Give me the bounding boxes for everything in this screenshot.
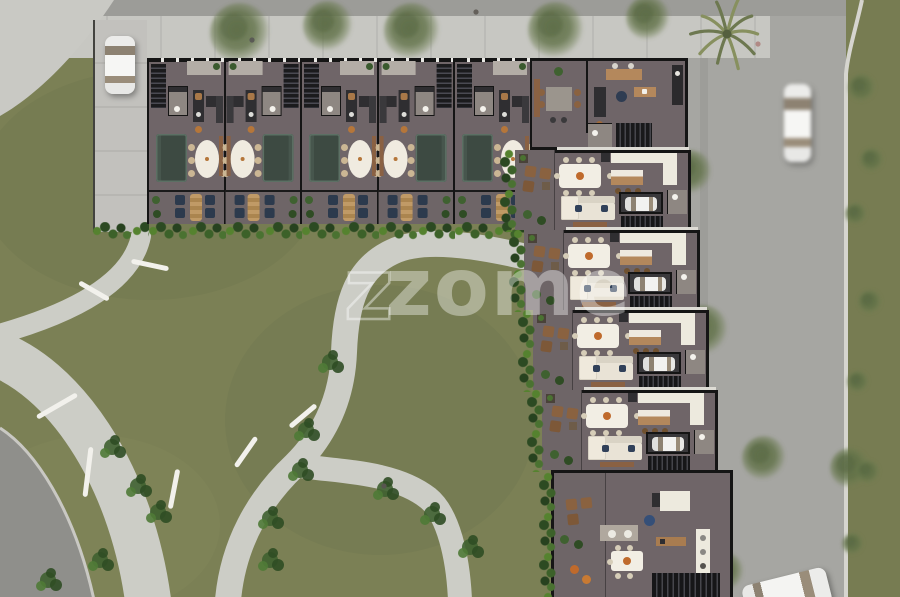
wood-sideboard <box>534 79 540 117</box>
bathroom <box>685 350 705 374</box>
terrace-plants <box>560 535 569 544</box>
garaged-car <box>625 197 657 211</box>
building-block <box>0 0 900 597</box>
staircase <box>457 64 472 108</box>
terrace-side-table <box>560 342 568 350</box>
kitchen-stool <box>247 126 254 133</box>
unit-furniture <box>302 58 377 224</box>
staircase <box>151 64 166 108</box>
wood-console <box>219 136 223 176</box>
bathroom <box>261 86 281 116</box>
sun-lounger <box>247 194 259 221</box>
porch-planter <box>382 63 389 70</box>
sofa-green <box>156 134 187 182</box>
sun-lounger <box>400 194 412 221</box>
side-hedge <box>527 388 545 472</box>
kitchen-counter <box>672 233 686 265</box>
terrace <box>149 190 224 224</box>
front-hedge <box>377 222 456 242</box>
bathroom <box>321 86 341 116</box>
wood-console <box>582 302 616 307</box>
townhouse-unit-right-3 <box>533 310 709 390</box>
bathroom <box>676 270 696 294</box>
kitchen-island <box>660 491 690 511</box>
bathroom <box>414 86 434 116</box>
garaged-car <box>652 437 684 451</box>
dining-chairs <box>615 545 621 551</box>
dining-chairs <box>590 397 596 403</box>
unit-furniture <box>149 58 224 224</box>
front-hedge <box>224 222 303 242</box>
dining-table-oval <box>230 140 254 178</box>
terrace-plants <box>523 210 532 219</box>
terrace-planter <box>519 154 528 163</box>
staircase <box>283 64 298 108</box>
desk-chairs <box>612 63 618 69</box>
garage <box>646 432 690 454</box>
dining-chairs <box>341 144 348 151</box>
terrace-plants <box>289 196 297 204</box>
kitchen-island <box>499 90 510 122</box>
kitchen-counter <box>216 96 223 123</box>
kitchen-counter <box>380 96 387 123</box>
bathroom <box>667 190 687 214</box>
terrace-chairs-brown <box>533 245 545 257</box>
dining-chairs <box>254 144 261 151</box>
terrace-poufs-orange <box>570 565 579 574</box>
terrace-chairs-brown <box>524 165 536 177</box>
kitchen-counter <box>672 65 683 105</box>
staircase <box>436 64 451 108</box>
desk-chairs <box>608 530 616 538</box>
table-centerpiece <box>623 557 631 565</box>
terrace-side-table <box>551 262 559 270</box>
wood-console <box>656 537 686 546</box>
bathroom <box>588 123 612 148</box>
stove <box>652 493 660 507</box>
townhouse-unit-top-1 <box>147 58 224 224</box>
terrace-armchairs <box>481 195 491 205</box>
table-centerpiece <box>603 412 611 420</box>
terrace-planter <box>537 314 546 323</box>
table-centerpiece <box>594 332 602 340</box>
wood-console <box>379 136 383 176</box>
kitchen-counter <box>696 529 710 573</box>
terrace-armchairs <box>417 195 427 205</box>
sofa-green <box>462 134 493 182</box>
sofa-cushions <box>575 205 582 212</box>
dining-chairs-dark <box>550 117 556 123</box>
kitchen-stool <box>348 126 355 133</box>
staircase <box>616 123 652 148</box>
wood-console <box>226 136 230 176</box>
kitchen-counter <box>690 393 704 425</box>
side-hedge <box>518 308 536 392</box>
site-plan-render: zzome <box>0 0 900 597</box>
dining-chairs <box>407 144 414 151</box>
bathroom <box>168 86 188 116</box>
garaged-car <box>634 277 666 291</box>
terrace-chairs-brown <box>542 325 554 337</box>
townhouse-unit-top-2 <box>224 58 301 224</box>
terrace-chairs-brown <box>565 498 577 510</box>
terrace-plants <box>550 450 559 459</box>
driveway-hedge <box>91 222 149 242</box>
staircase <box>304 64 319 108</box>
kitchen-counter <box>227 96 234 123</box>
kitchen-island <box>398 90 409 122</box>
front-hedge <box>300 222 379 242</box>
dining-chairs-brown <box>538 89 545 96</box>
terrace-side-table <box>542 182 550 190</box>
dining-table-square <box>546 87 572 111</box>
stove <box>628 393 637 402</box>
dining-table-oval <box>348 140 372 178</box>
townhouse-unit-right-4 <box>542 390 718 470</box>
kitchen-counter <box>522 96 529 123</box>
townhouse-unit-bottom <box>551 470 733 597</box>
wood-console <box>600 462 634 467</box>
garage <box>628 272 672 294</box>
terrace-armchairs <box>264 195 274 205</box>
kitchen-island <box>245 90 256 122</box>
kitchen-island <box>611 170 643 185</box>
dining-chairs <box>581 317 587 323</box>
side-hedge <box>500 148 518 232</box>
porch-planter <box>229 63 236 70</box>
townhouse-unit-right-2 <box>524 230 700 310</box>
round-table-blue <box>616 91 627 102</box>
sofa-cushions <box>602 445 609 452</box>
stove <box>619 313 628 322</box>
townhouse-unit-right-1 <box>515 150 691 230</box>
kitchen-island <box>594 87 606 117</box>
corner-unit <box>530 58 688 150</box>
kitchen-island <box>193 90 204 122</box>
kitchen-counter <box>663 153 677 185</box>
terrace <box>226 190 301 224</box>
kitchen-island <box>620 250 652 265</box>
work-desk <box>600 525 638 541</box>
dining-table-oval <box>195 140 219 178</box>
terrace-planter <box>528 234 537 243</box>
kitchen-counter <box>681 313 695 345</box>
staircase <box>652 573 720 597</box>
townhouse-unit-top-3 <box>300 58 377 224</box>
sofa-green <box>262 134 293 182</box>
dining-chairs <box>572 237 578 243</box>
bathroom <box>694 430 714 454</box>
side-hedge <box>539 471 557 597</box>
terrace-armchairs <box>175 195 185 205</box>
kitchen-stool <box>195 126 202 133</box>
terrace-side-table <box>569 422 577 430</box>
bathroom <box>474 86 494 116</box>
porch-planter <box>213 63 220 70</box>
kitchen-island <box>638 410 670 425</box>
garage <box>619 192 663 214</box>
sun-lounger <box>190 194 202 221</box>
driveway <box>93 20 147 232</box>
garaged-car <box>643 357 675 371</box>
sofa-green <box>309 134 340 182</box>
stove <box>610 233 619 242</box>
table-centerpiece <box>585 252 593 260</box>
front-hedge <box>147 222 226 242</box>
terrace-plants <box>152 196 160 204</box>
table-centerpiece <box>576 172 584 180</box>
unit-furniture <box>379 58 454 224</box>
terrace-plants <box>532 290 541 299</box>
wood-console <box>372 136 376 176</box>
garage <box>637 352 681 374</box>
work-desk <box>606 69 642 80</box>
side-hedge <box>509 228 527 312</box>
dining-table-oval <box>383 140 407 178</box>
terrace-armchairs <box>328 195 338 205</box>
terrace-chairs-brown <box>551 405 563 417</box>
wood-console <box>591 382 625 387</box>
townhouse-unit-top-4 <box>377 58 454 224</box>
dining-chairs <box>563 157 569 163</box>
unit-furniture <box>226 58 301 224</box>
terrace-plants <box>442 196 450 204</box>
dining-chairs <box>188 144 195 151</box>
kitchen-counter <box>369 96 376 123</box>
sofa-green <box>415 134 446 182</box>
indoor-plant <box>554 67 563 76</box>
kitchen-island <box>629 330 661 345</box>
kitchen-stool <box>400 126 407 133</box>
wood-console <box>573 222 607 227</box>
kitchen-stool <box>501 126 508 133</box>
stove <box>601 153 610 162</box>
sun-lounger <box>343 194 355 221</box>
ottoman-blue <box>644 515 655 526</box>
sofa-cushions <box>584 285 591 292</box>
terrace-plants <box>541 370 550 379</box>
wood-table <box>634 87 656 97</box>
sofa-cushions <box>593 365 600 372</box>
terrace <box>302 190 377 224</box>
kitchen-island <box>346 90 357 122</box>
terrace-planter <box>546 394 555 403</box>
terrace <box>379 190 454 224</box>
